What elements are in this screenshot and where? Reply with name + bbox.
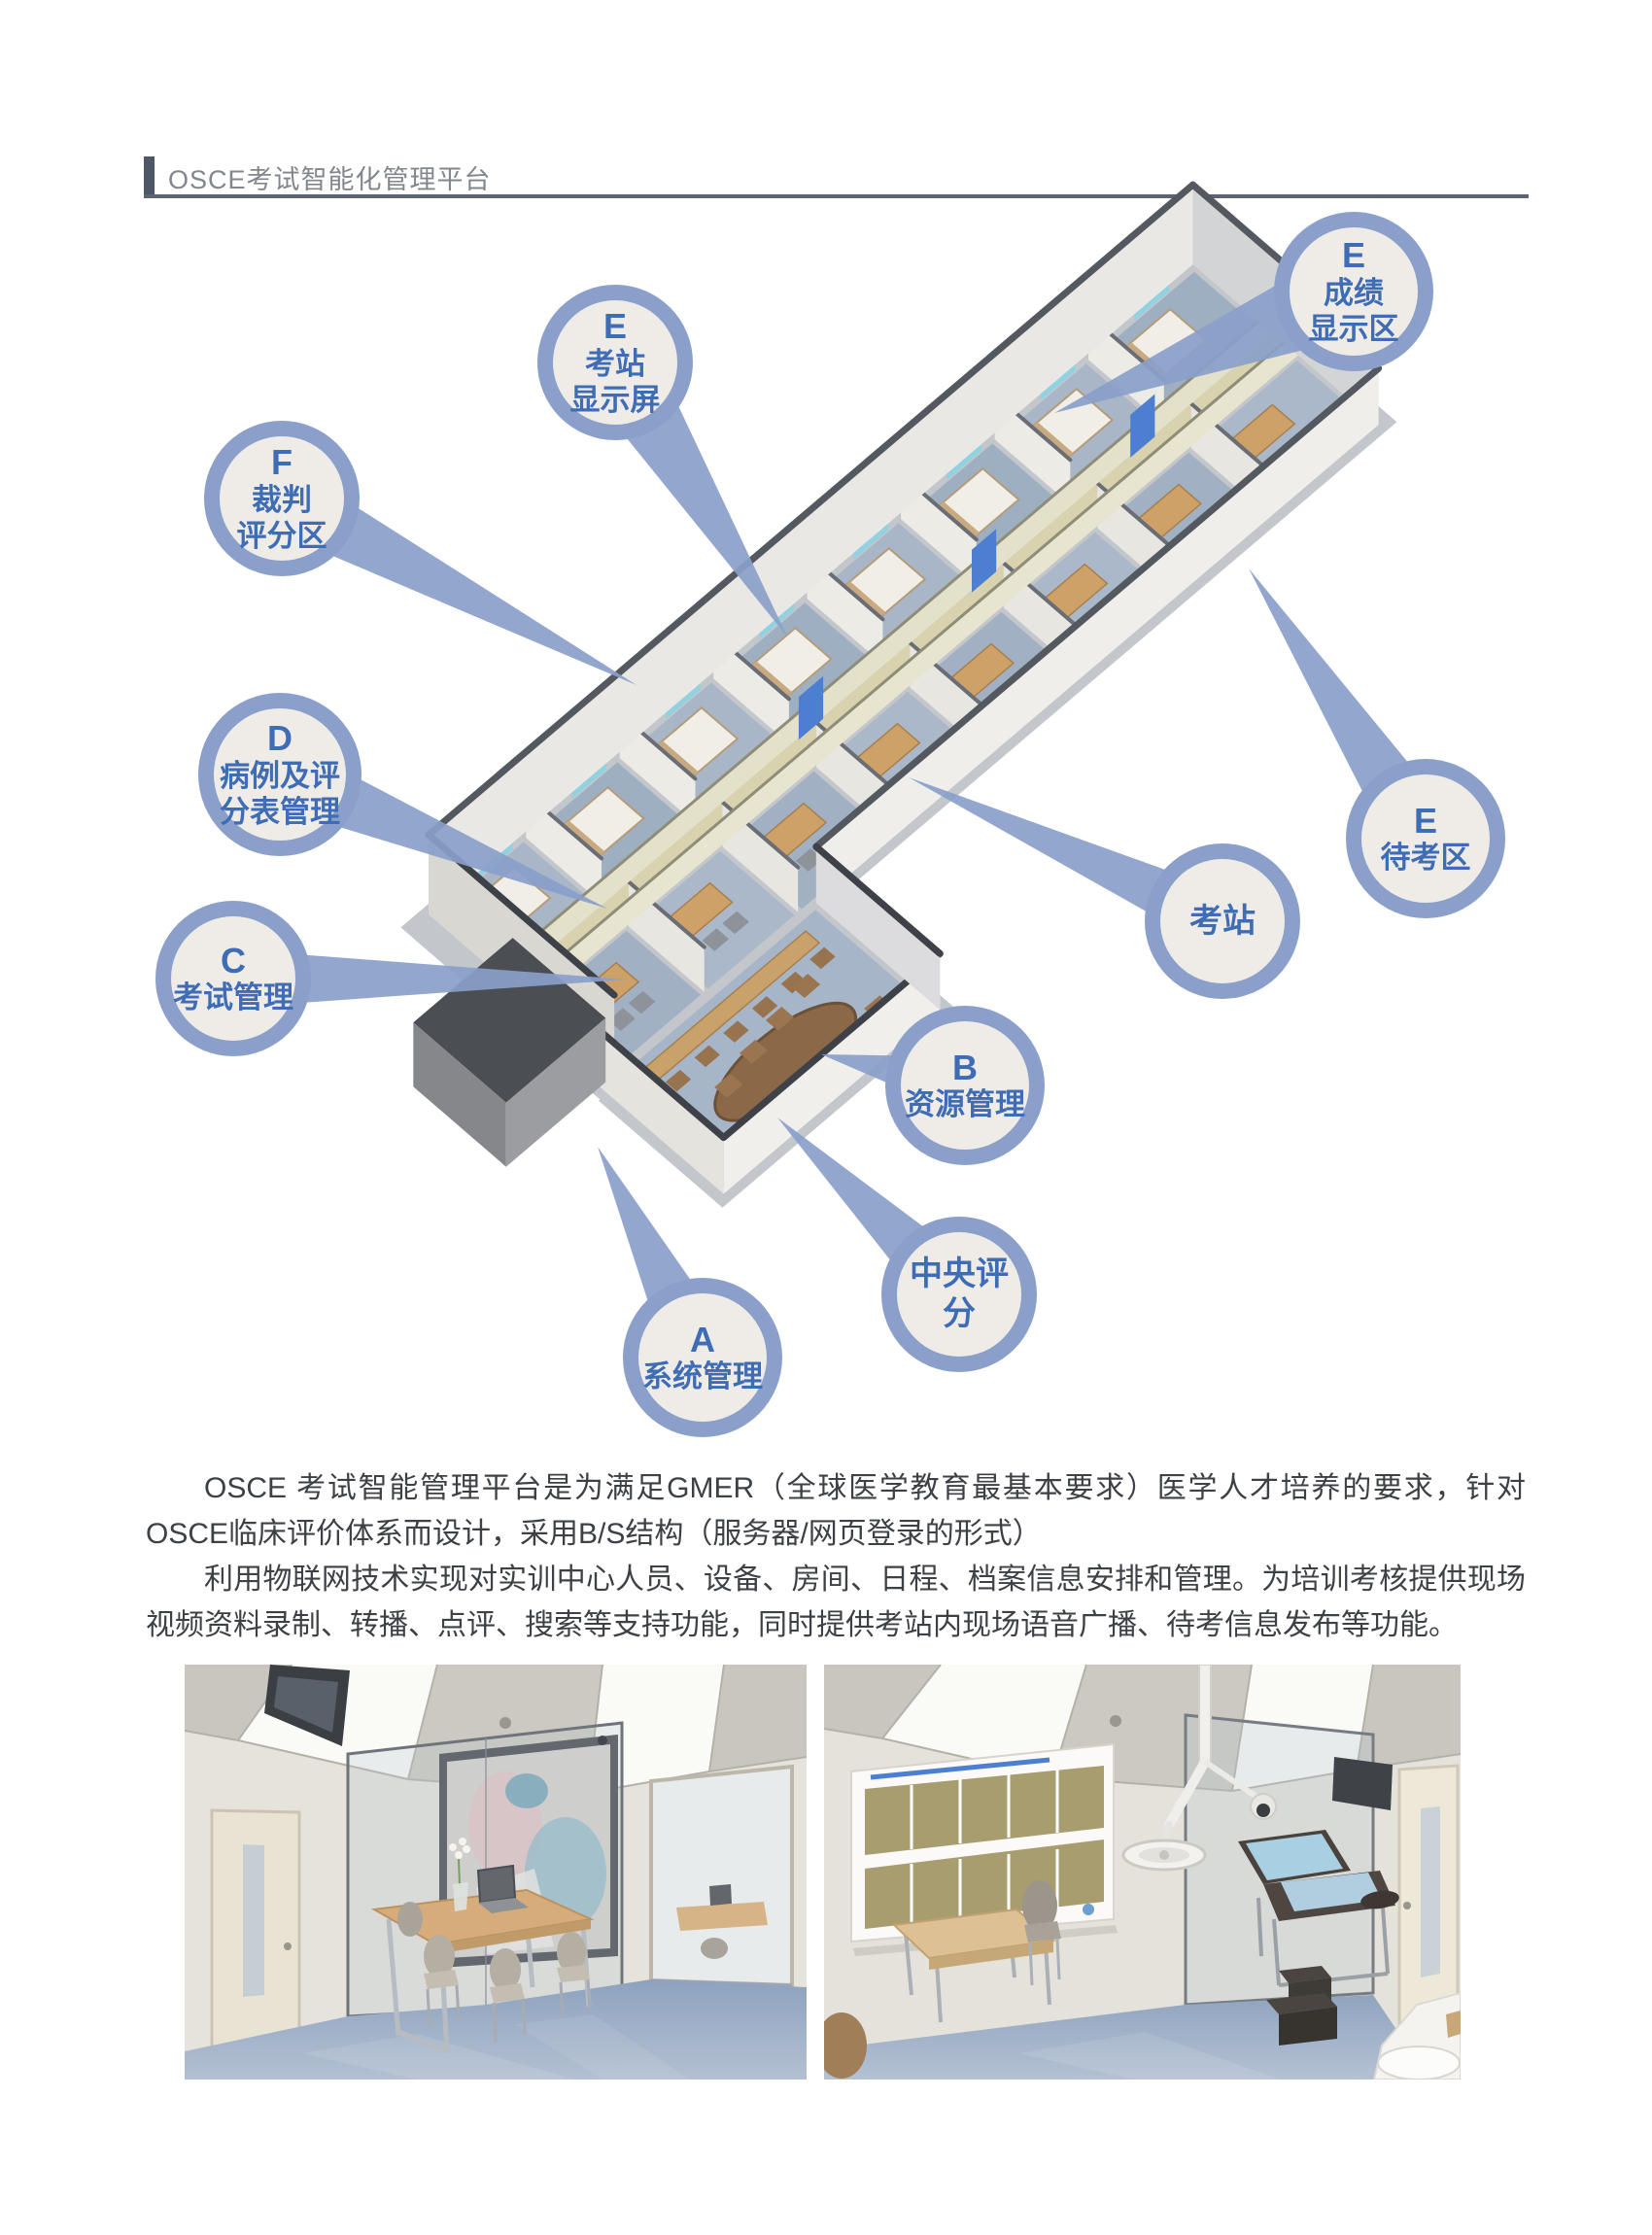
photo-exam-room	[824, 1665, 1461, 2080]
callout-label: 中央评分	[897, 1255, 1021, 1334]
callout-letter: E	[603, 307, 627, 346]
callout-label: 考试管理	[173, 980, 293, 1015]
description-paragraph-2: 利用物联网技术实现对实训中心人员、设备、房间、日程、档案信息安排和管理。为培训考…	[146, 1557, 1526, 1648]
camera-dome	[598, 1736, 607, 1745]
callout-exam-management: C考试管理	[155, 901, 311, 1056]
callout-score-display-area: E成绩 显示区	[1274, 212, 1433, 371]
brochure-page: OSCE考试智能化管理平台 E考站 显示屏 E成绩 显示区 F裁判 评分区 D病…	[0, 0, 1652, 2235]
callout-system-management: A系统管理	[623, 1278, 782, 1437]
callout-letter: E	[1414, 802, 1437, 841]
callout-case-scoresheet-management: D病例及评 分表管理	[198, 693, 361, 856]
photo-meeting-room	[185, 1665, 807, 2080]
callout-central-scoring: 中央评分	[881, 1217, 1037, 1372]
callout-label: 系统管理	[642, 1358, 763, 1394]
callout-letter: C	[221, 942, 246, 980]
description-section: OSCE 考试智能管理平台是为满足GMER（全球医学教育最基本要求）医学人才培养…	[146, 1465, 1526, 1648]
callout-label: 病例及评 分表管理	[220, 758, 340, 830]
callout-letter: F	[271, 443, 293, 482]
callout-label: 裁判 评分区	[237, 482, 327, 554]
observation-window	[651, 1767, 792, 1985]
callout-letter: B	[952, 1049, 978, 1087]
callout-label: 考站	[1189, 902, 1256, 942]
callout-letter: E	[1342, 236, 1365, 275]
callout-judge-scoring-area: F裁判 评分区	[204, 421, 360, 576]
door	[1399, 1766, 1458, 2034]
callout-label: 成绩 显示区	[1309, 275, 1399, 347]
callout-letter: A	[690, 1321, 715, 1359]
callout-exam-station: 考站	[1145, 843, 1300, 999]
callout-exam-station-display: E考站 显示屏	[537, 285, 693, 440]
callout-label: 考站 显示屏	[570, 346, 661, 418]
callout-resource-management: B资源管理	[885, 1006, 1045, 1165]
callout-letter: D	[267, 719, 293, 758]
description-paragraph-1: OSCE 考试智能管理平台是为满足GMER（全球医学教育最基本要求）医学人才培养…	[146, 1465, 1526, 1557]
laptop	[478, 1866, 515, 1903]
callout-label: 待考区	[1381, 840, 1471, 876]
door	[212, 1810, 299, 2061]
callout-label: 资源管理	[905, 1086, 1025, 1122]
callout-waiting-area: E待考区	[1346, 759, 1505, 918]
